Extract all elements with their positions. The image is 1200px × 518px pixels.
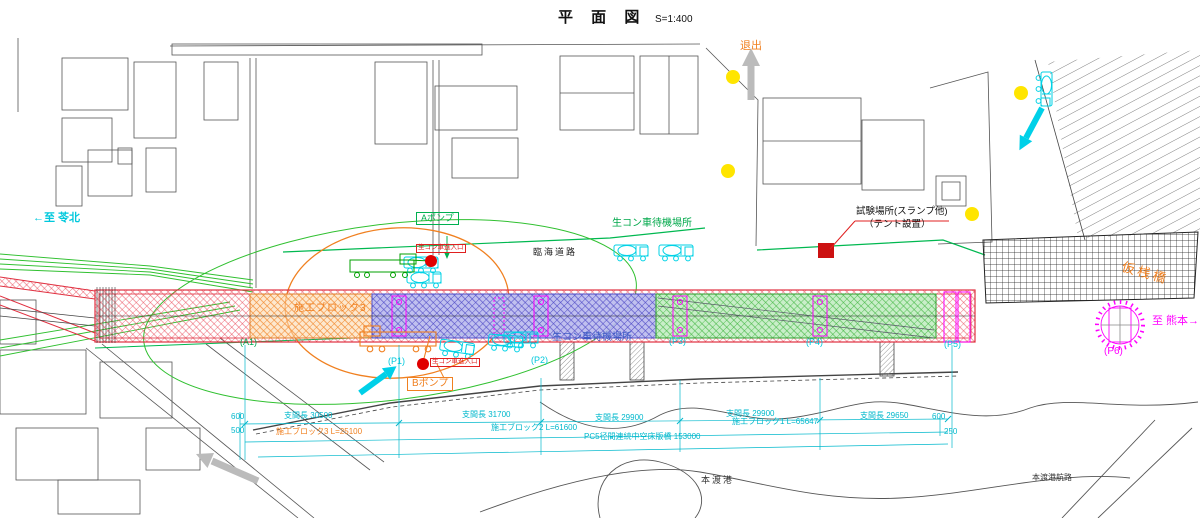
dim-edge-right-bottom: 250 bbox=[944, 428, 957, 436]
label-truck-entry-bottom: 生コン車進入口 bbox=[430, 358, 480, 367]
pier-label-p3: (P3) bbox=[669, 337, 686, 346]
exit-arrow-icon bbox=[742, 48, 760, 100]
pier-label-p4: (P4) bbox=[806, 338, 823, 347]
yellow-marker bbox=[965, 207, 979, 221]
trestle bbox=[983, 50, 1200, 303]
pier-label-a1: (A1) bbox=[240, 338, 257, 347]
pump-a-hose-point bbox=[425, 255, 437, 267]
page-title: 平 面 図 bbox=[558, 10, 646, 25]
dim-block-2: 施工ブロック2 L=61600 bbox=[491, 424, 577, 432]
dim-span-5: 支間長 29650 bbox=[860, 412, 908, 420]
label-to-reihoku: ←至 苓北 bbox=[33, 213, 80, 224]
bridge bbox=[95, 287, 975, 343]
label-hondo-route: 本渡港航路 bbox=[1032, 474, 1072, 482]
dim-block-3: 施工ブロック3 L=25100 bbox=[276, 428, 362, 436]
label-coastal-road: 臨海道路 bbox=[533, 248, 577, 257]
dim-block-1: 施工ブロック1 L=65647 bbox=[732, 418, 818, 426]
mixer-truck-icon bbox=[659, 245, 693, 261]
label-pump-a: Aポンプ bbox=[416, 212, 459, 225]
dim-edge-right-top: 600 bbox=[932, 413, 945, 421]
yellow-marker bbox=[721, 164, 735, 178]
pier-label-p6: (P6) bbox=[1104, 347, 1123, 357]
pump-b-hose-point bbox=[417, 358, 429, 370]
mixer-truck-icon bbox=[614, 245, 648, 261]
label-waiting-area-bottom: 生コン車待機場所 bbox=[552, 333, 632, 343]
entry-arrow-icon bbox=[196, 453, 258, 481]
mixer-truck-icon bbox=[1036, 72, 1052, 106]
plan-view-canvas: 平 面 図 S=1:400 退出 ←至 苓北 至 熊本→ 仮桟橋 臨海道路 生コ… bbox=[0, 0, 1200, 518]
dim-span-2: 支間長 31700 bbox=[462, 411, 510, 419]
label-test-site: 試験場所(スランプ他) bbox=[856, 207, 948, 217]
drawing-scale: S=1:400 bbox=[655, 15, 693, 25]
label-to-kumamoto: 至 熊本→ bbox=[1152, 316, 1199, 327]
cyan-arrow-pump-b-icon bbox=[360, 366, 397, 393]
mixer-truck-icon bbox=[407, 272, 441, 288]
test-site-marker bbox=[818, 243, 834, 258]
yellow-marker bbox=[1014, 86, 1028, 100]
dim-edge-left-top: 600 bbox=[231, 413, 244, 421]
label-tent: （テント設置） bbox=[864, 220, 931, 230]
dim-total-length: PC5径間連続中空床版橋 153000 bbox=[584, 433, 700, 441]
label-pump-b: Bポンプ bbox=[407, 377, 453, 391]
label-exit: 退出 bbox=[740, 41, 762, 52]
p6-foundation bbox=[1097, 302, 1143, 348]
label-hondo-port: 本渡港 bbox=[701, 476, 734, 485]
label-waiting-area-top: 生コン車待機場所 bbox=[612, 219, 692, 229]
dim-edge-left-bottom: 500 bbox=[231, 427, 244, 435]
dimension-lines bbox=[240, 345, 952, 460]
pier-label-p1: (P1) bbox=[388, 357, 405, 366]
yellow-marker bbox=[726, 70, 740, 84]
dim-span-1: 支間長 30500 bbox=[284, 412, 332, 420]
pier-label-p5: (P5) bbox=[944, 340, 961, 349]
cyan-arrow-top-right-icon bbox=[1019, 108, 1042, 150]
pier-label-p2: (P2) bbox=[531, 356, 548, 365]
label-truck-entry-top: 生コン車進入口 bbox=[416, 244, 466, 253]
label-block3-zone: 施工ブロック3 bbox=[294, 304, 367, 314]
dim-span-3: 支間長 29900 bbox=[595, 414, 643, 422]
